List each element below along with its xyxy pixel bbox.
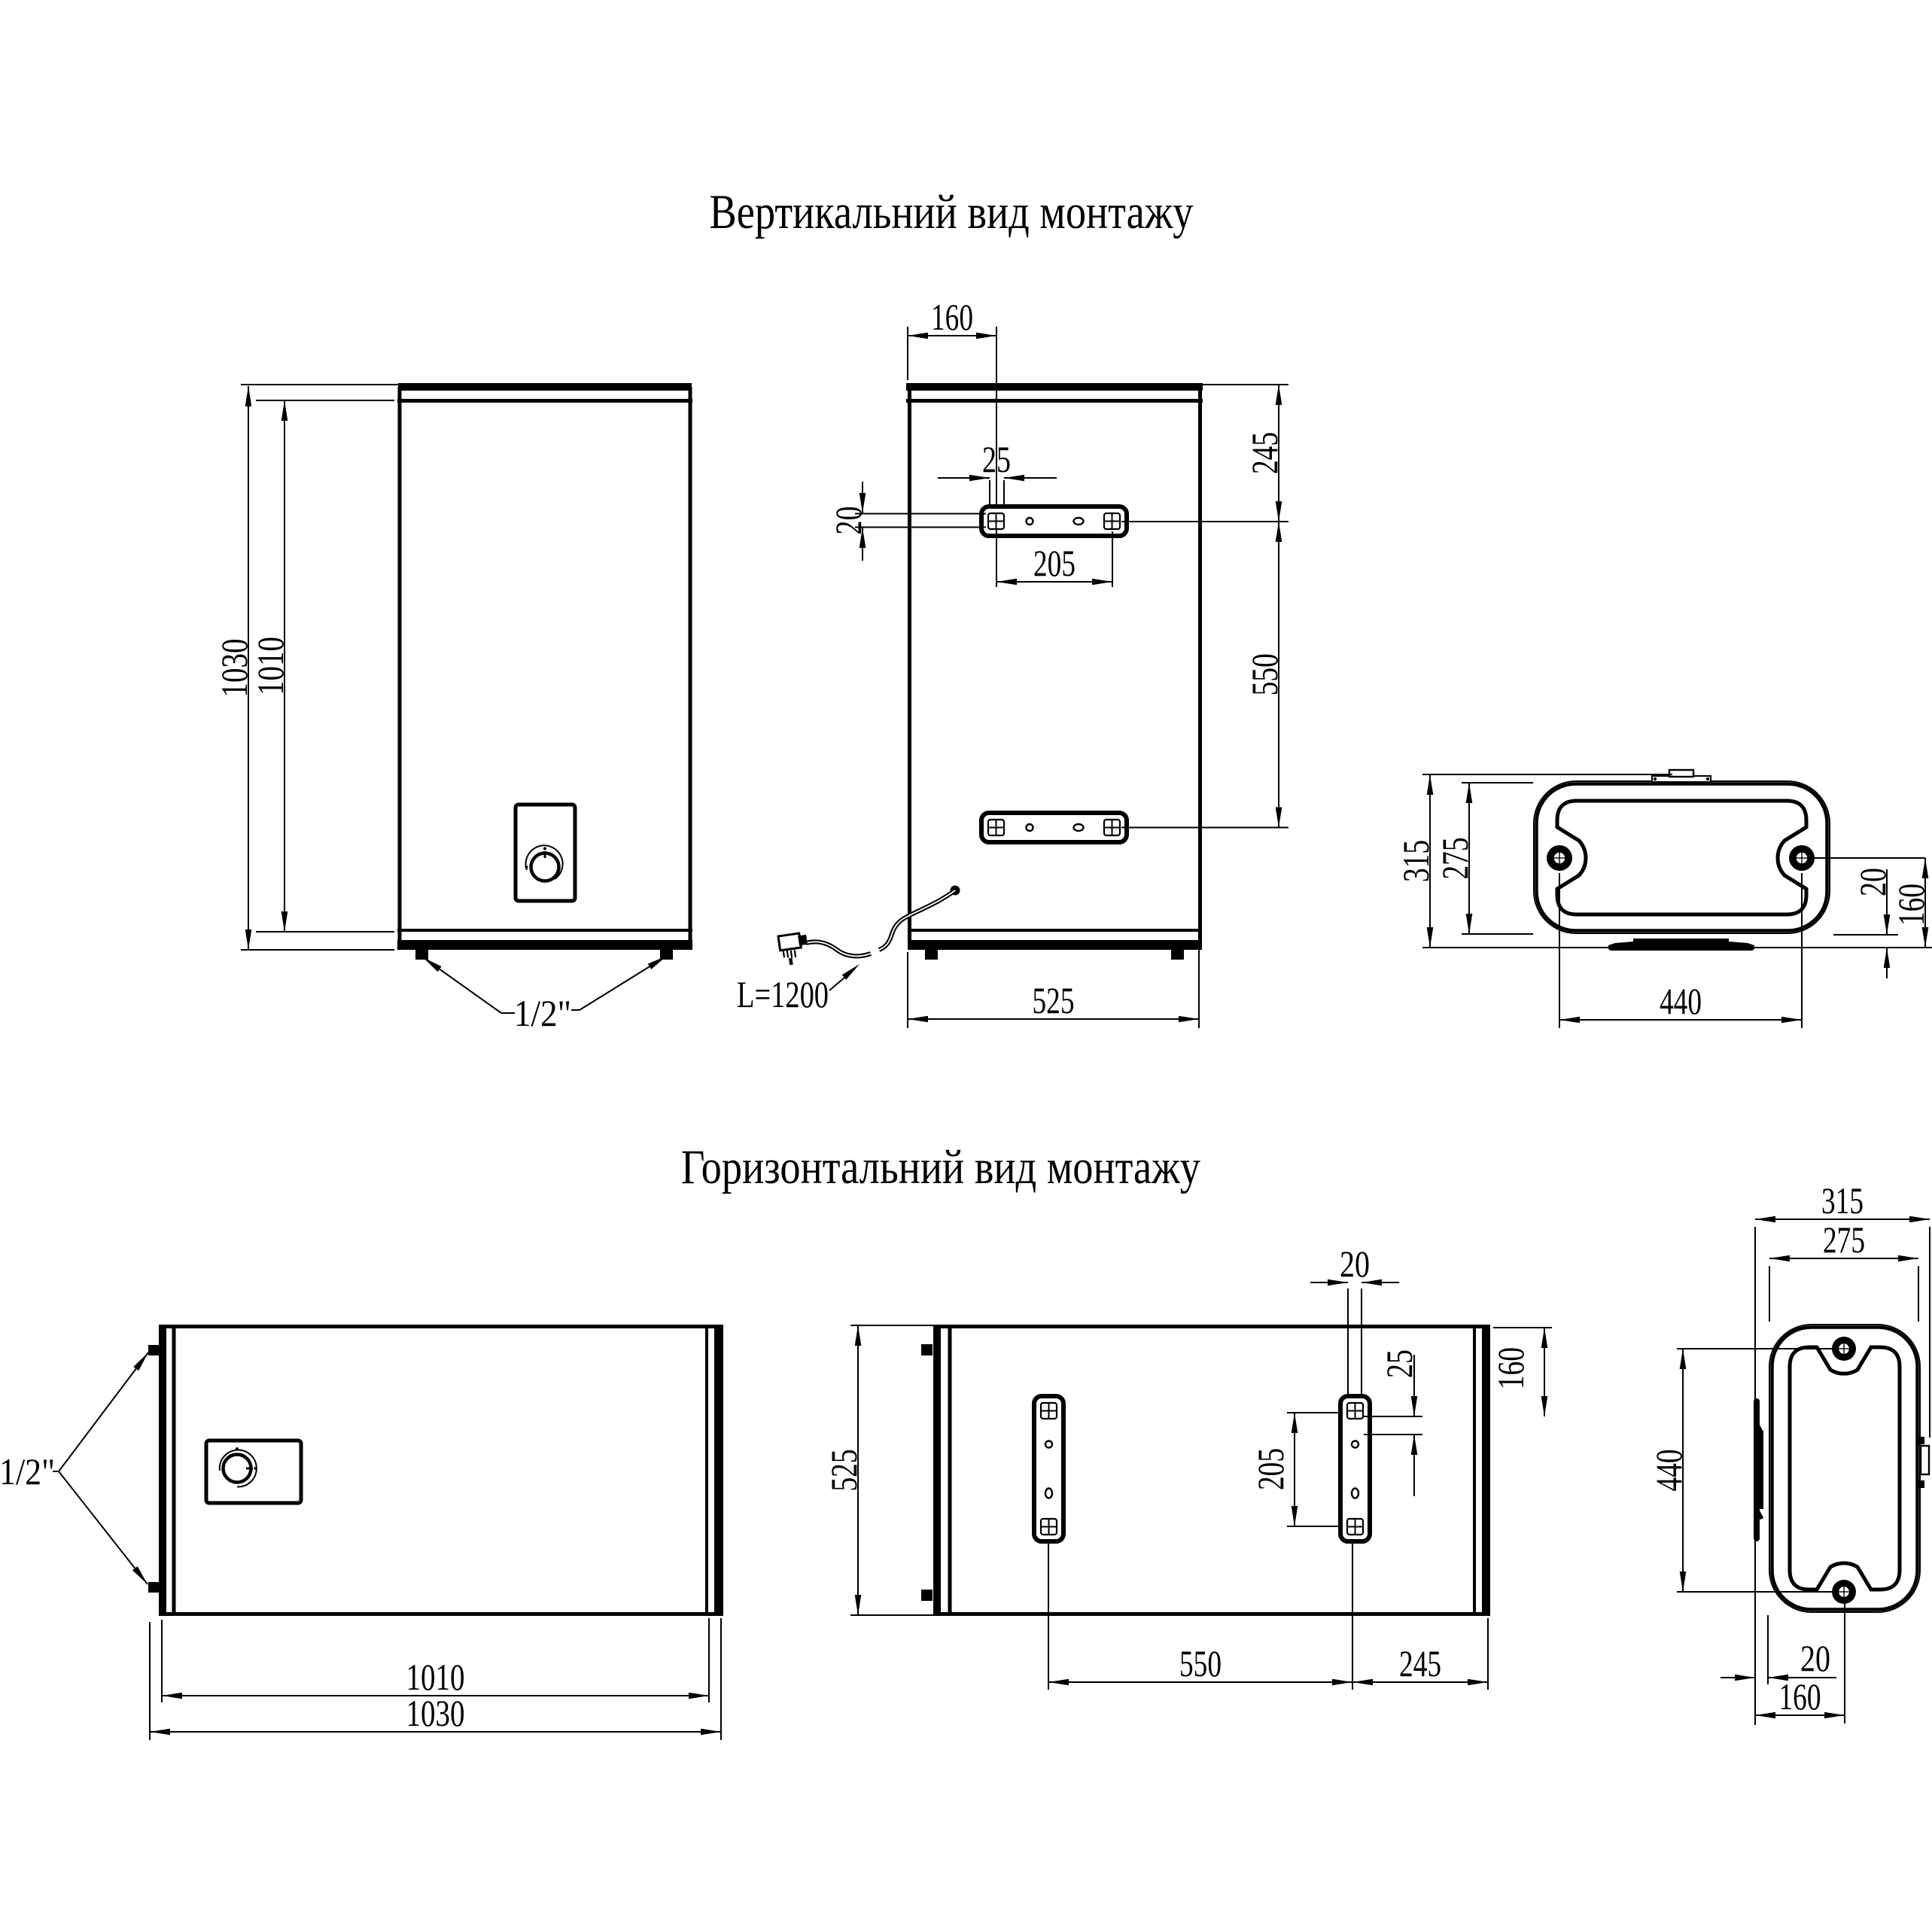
svg-text:1/2": 1/2" bbox=[0, 1450, 55, 1492]
svg-text:Вертикальний вид монтажу: Вертикальний вид монтажу bbox=[710, 185, 1194, 239]
svg-text:205: 205 bbox=[1249, 1448, 1292, 1490]
svg-text:1010: 1010 bbox=[249, 637, 291, 695]
svg-text:160: 160 bbox=[931, 296, 973, 338]
svg-text:275: 275 bbox=[1823, 1219, 1865, 1261]
svg-text:550: 550 bbox=[1243, 653, 1285, 695]
svg-text:Горизонтальний вид монтажу: Горизонтальний вид монтажу bbox=[681, 1140, 1200, 1194]
svg-text:160: 160 bbox=[1489, 1347, 1532, 1389]
svg-text:440: 440 bbox=[1648, 1450, 1690, 1492]
svg-text:25: 25 bbox=[1378, 1349, 1420, 1378]
svg-text:25: 25 bbox=[982, 438, 1011, 480]
svg-text:315: 315 bbox=[1821, 1179, 1864, 1222]
svg-text:245: 245 bbox=[1243, 432, 1285, 474]
svg-text:1/2": 1/2" bbox=[514, 992, 571, 1034]
svg-text:L=1200: L=1200 bbox=[737, 973, 829, 1015]
svg-text:20: 20 bbox=[1851, 868, 1894, 896]
svg-text:245: 245 bbox=[1399, 1642, 1441, 1684]
svg-text:160: 160 bbox=[1890, 884, 1932, 926]
svg-text:275: 275 bbox=[1434, 838, 1476, 880]
svg-text:160: 160 bbox=[1779, 1675, 1821, 1718]
svg-text:1030: 1030 bbox=[406, 1692, 465, 1734]
svg-text:440: 440 bbox=[1660, 980, 1702, 1022]
svg-text:20: 20 bbox=[1340, 1243, 1370, 1285]
svg-text:550: 550 bbox=[1179, 1642, 1222, 1684]
svg-text:525: 525 bbox=[823, 1450, 865, 1492]
svg-text:20: 20 bbox=[1800, 1637, 1830, 1679]
svg-text:315: 315 bbox=[1395, 840, 1437, 882]
svg-text:20: 20 bbox=[827, 507, 869, 535]
svg-text:525: 525 bbox=[1033, 979, 1075, 1021]
svg-text:205: 205 bbox=[1033, 542, 1076, 584]
